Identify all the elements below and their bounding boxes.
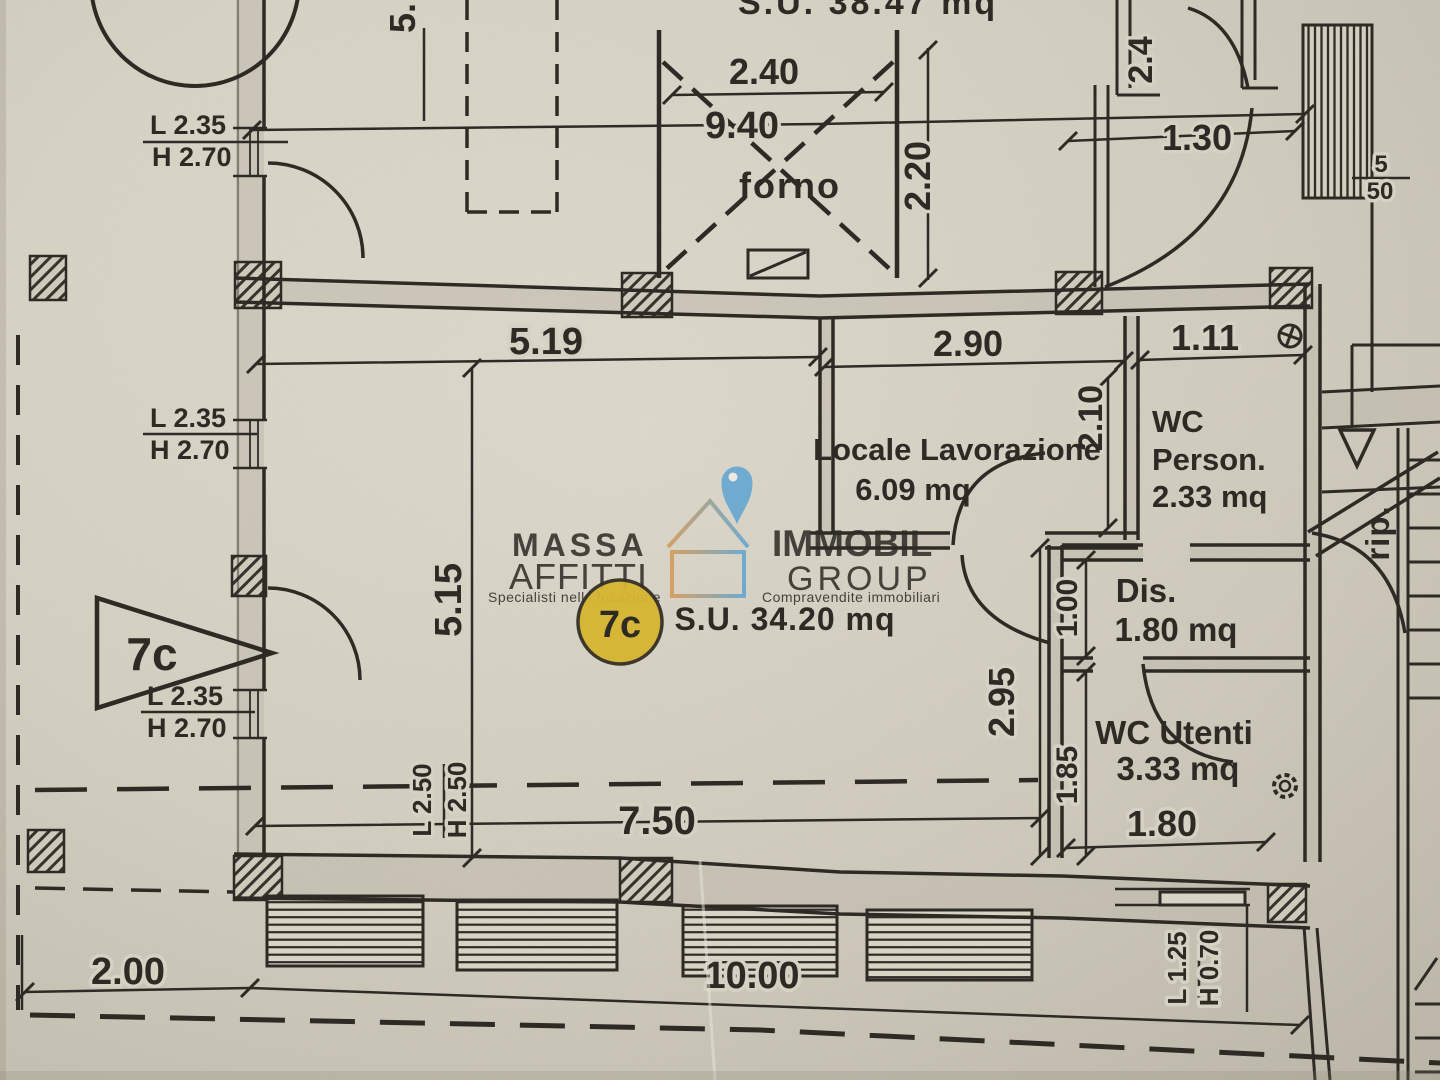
scan-grain [0, 0, 1440, 1080]
edge-shadow-left [0, 0, 6, 1080]
edge-shadow-bottom [0, 1071, 1440, 1080]
floor-plan-photo: 7c S.U. 38.47 mq 2.40 9.40 forno 2.20 2.… [0, 0, 1440, 1080]
floor-plan-scan: 7c S.U. 38.47 mq 2.40 9.40 forno 2.20 2.… [0, 0, 1440, 1080]
